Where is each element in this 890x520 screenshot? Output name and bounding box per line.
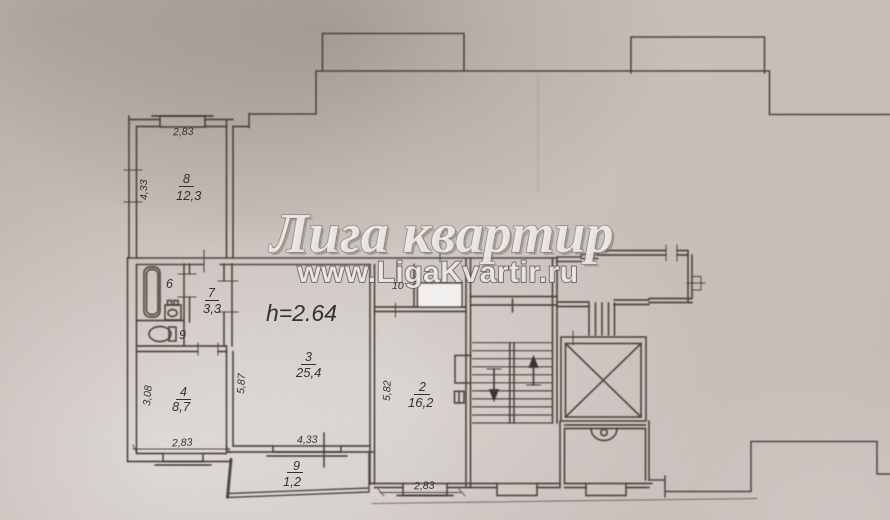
svg-text:5,87: 5,87 — [235, 372, 248, 394]
svg-text:25,4: 25,4 — [295, 365, 321, 380]
svg-text:3,08: 3,08 — [141, 385, 155, 407]
svg-text:5,82: 5,82 — [381, 380, 394, 401]
svg-text:2,83: 2,83 — [413, 480, 435, 493]
svg-text:4: 4 — [180, 385, 187, 399]
svg-text:1,2: 1,2 — [283, 474, 302, 489]
svg-text:3,3: 3,3 — [203, 301, 222, 316]
svg-text:16,2: 16,2 — [408, 395, 434, 410]
svg-text:9: 9 — [293, 459, 300, 473]
svg-text:2: 2 — [418, 380, 426, 394]
svg-text:3: 3 — [305, 350, 312, 364]
svg-text:2,83: 2,83 — [172, 126, 194, 139]
svg-text:9: 9 — [179, 328, 186, 342]
svg-text:12,3: 12,3 — [176, 188, 202, 203]
svg-text:h=2.64: h=2.64 — [266, 300, 337, 326]
svg-text:4,33: 4,33 — [297, 434, 318, 447]
svg-text:7: 7 — [208, 286, 216, 300]
svg-text:4,33: 4,33 — [138, 179, 150, 200]
svg-text:8: 8 — [183, 172, 190, 186]
svg-text:6: 6 — [166, 277, 173, 291]
svg-text:8,7: 8,7 — [172, 399, 191, 414]
svg-text:2,83: 2,83 — [171, 436, 193, 449]
svg-text:www.LigaKvartir.ru: www.LigaKvartir.ru — [296, 256, 578, 289]
